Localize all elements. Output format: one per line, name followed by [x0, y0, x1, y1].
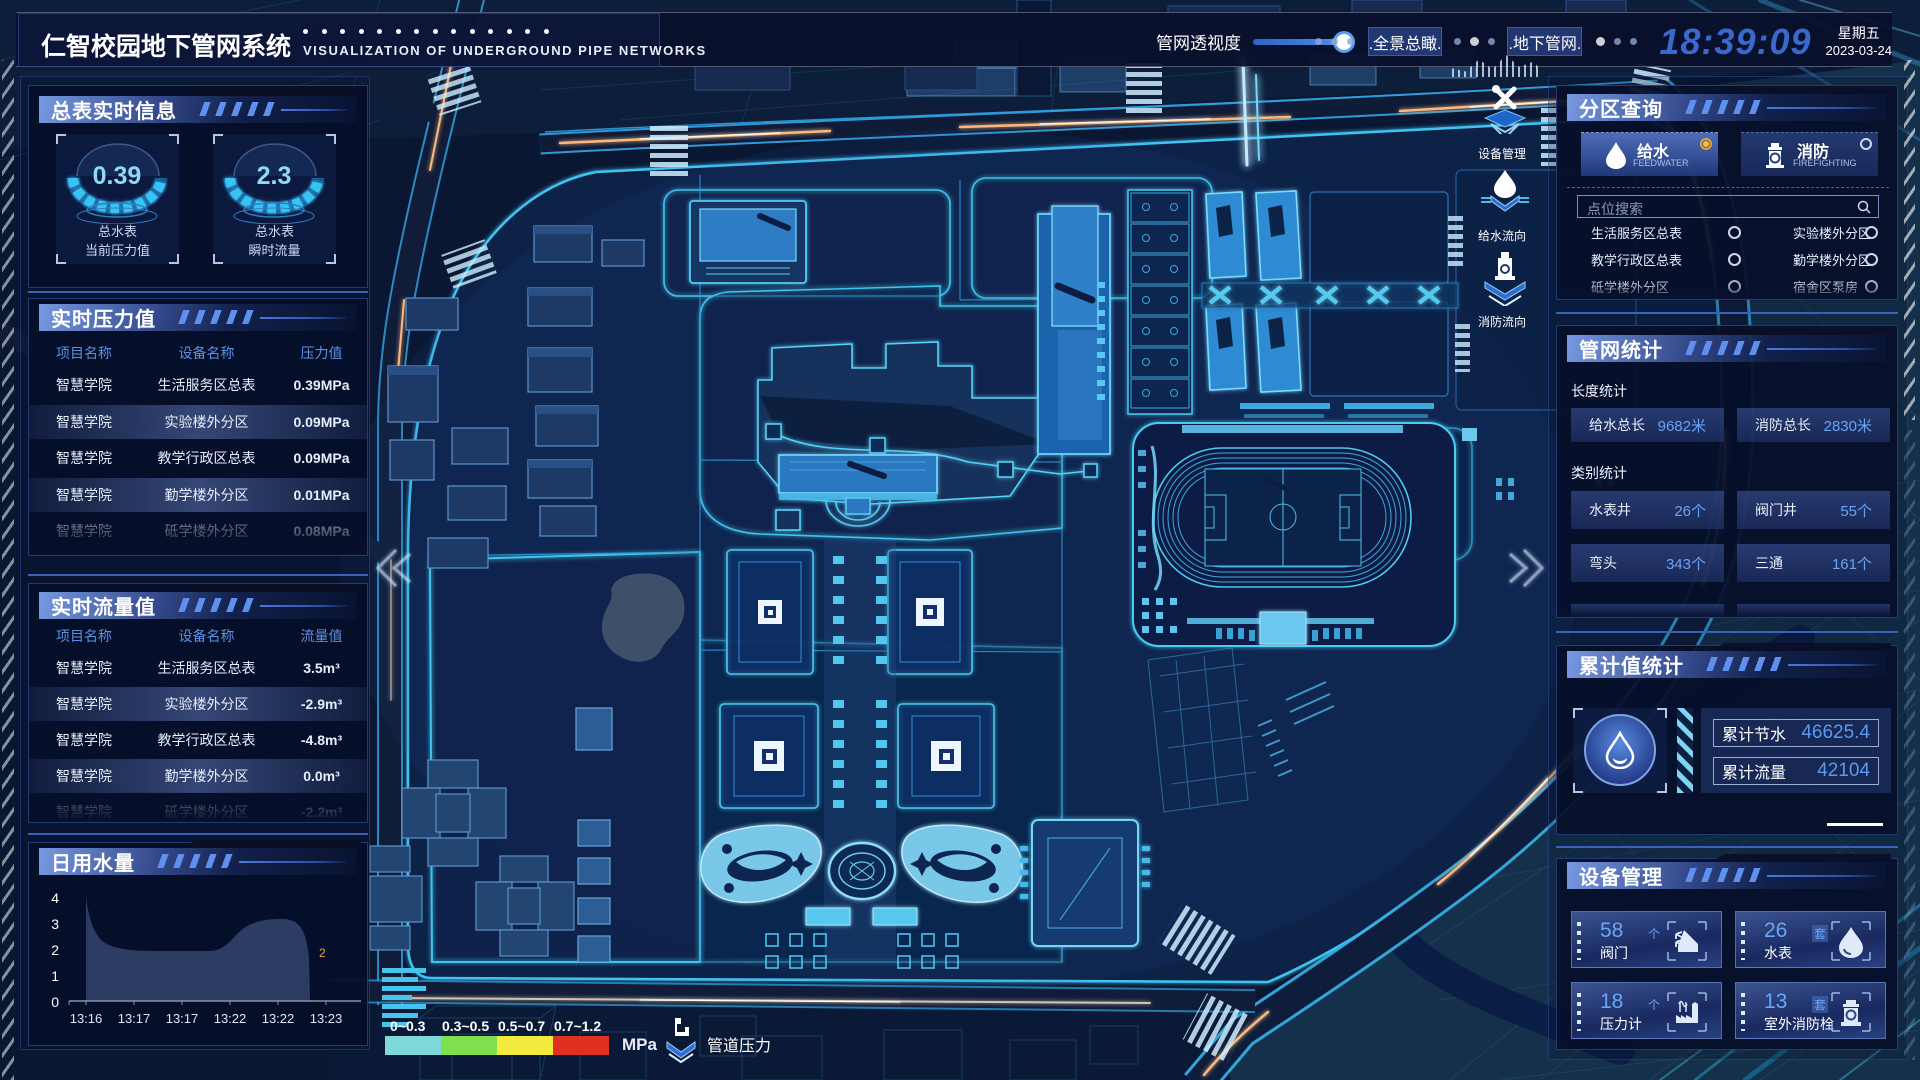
svg-text:3: 3	[51, 916, 59, 932]
svg-text:13:16: 13:16	[70, 1011, 103, 1026]
svg-text:2: 2	[319, 946, 326, 960]
svg-text:13:23: 13:23	[310, 1011, 343, 1026]
svg-text:1: 1	[51, 968, 59, 984]
svg-text:0.39: 0.39	[93, 162, 142, 190]
svg-text:13:17: 13:17	[118, 1011, 151, 1026]
svg-text:0: 0	[51, 994, 59, 1010]
svg-text:2.3: 2.3	[257, 162, 292, 190]
svg-text:13:22: 13:22	[214, 1011, 247, 1026]
svg-text:2: 2	[51, 942, 59, 958]
svg-text:13:22: 13:22	[262, 1011, 295, 1026]
svg-text:13:17: 13:17	[166, 1011, 199, 1026]
svg-text:4: 4	[51, 890, 59, 906]
